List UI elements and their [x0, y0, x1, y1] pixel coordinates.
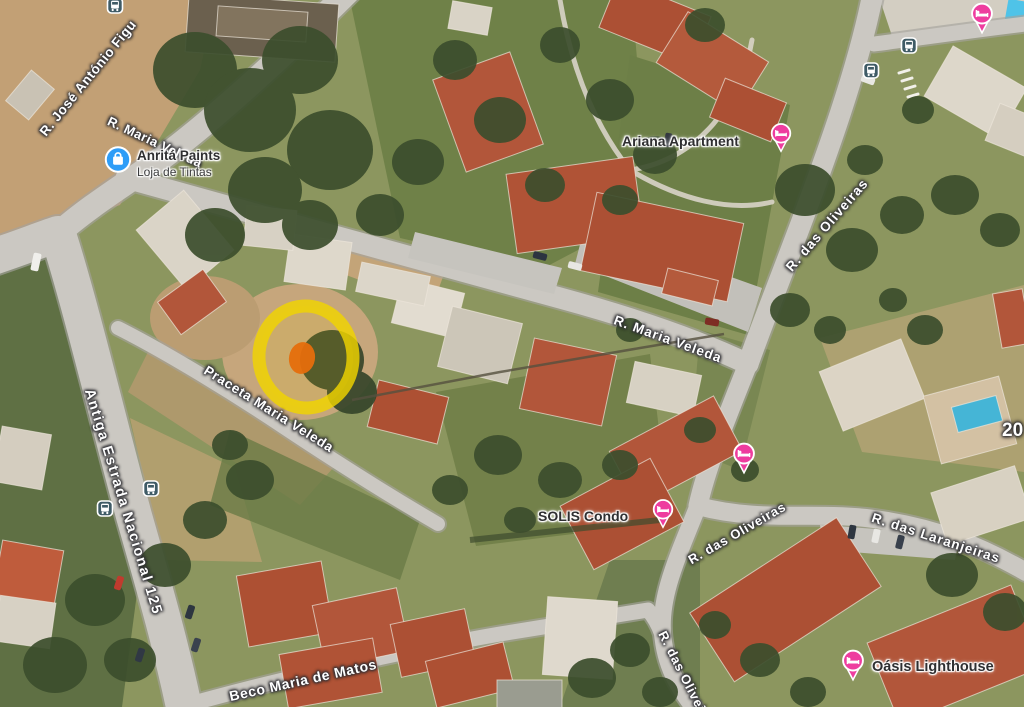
satellite-map[interactable]: R. José António Figu R. Maria Veleda R. …: [0, 0, 1024, 707]
ariana-lodging-pin[interactable]: [770, 123, 793, 158]
parcel-highlight-ring: [256, 303, 357, 411]
oasis-lodging-pin[interactable]: [841, 649, 866, 686]
bus-stop-icon[interactable]: [901, 37, 918, 59]
house-number-label: 20: [1002, 420, 1023, 442]
highlighted-parcel: [256, 303, 357, 411]
anrita-paints-icon[interactable]: [105, 146, 132, 178]
bus-stop-icon[interactable]: [97, 500, 114, 522]
satellite-imagery: [0, 0, 1024, 707]
lodging-pin-icon[interactable]: [732, 442, 757, 479]
bus-stop-icon[interactable]: [107, 0, 124, 19]
place-label-ariana-apartment[interactable]: Ariana Apartment: [622, 133, 739, 149]
place-label-anrita-paints[interactable]: Anritá Paints: [137, 148, 220, 163]
place-label-solis-condo[interactable]: SOLIS Condo: [538, 508, 628, 524]
solis-lodging-pin[interactable]: [652, 499, 675, 534]
bus-stop-icon[interactable]: [863, 62, 880, 84]
place-sublabel-anrita-paints: Loja de Tintas: [137, 165, 212, 179]
lodging-pin-icon[interactable]: [970, 2, 995, 39]
place-label-oasis-lighthouse[interactable]: Oásis Lighthouse: [872, 659, 994, 675]
bus-stop-icon[interactable]: [143, 480, 160, 502]
